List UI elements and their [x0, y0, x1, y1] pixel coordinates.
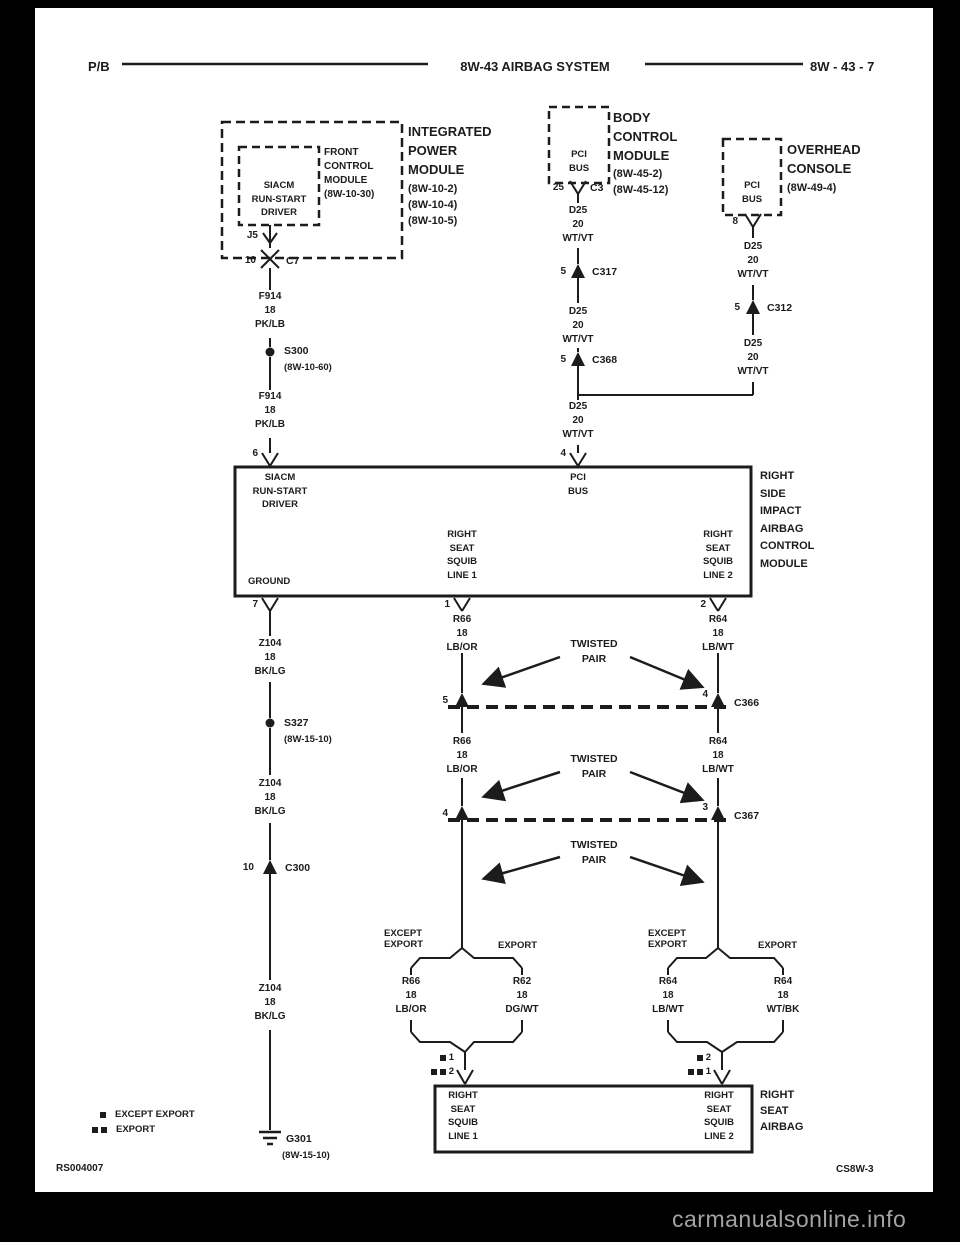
siacm-ground-label: GROUND — [248, 575, 308, 589]
console-bus-label: PCI BUS — [723, 179, 781, 206]
airbag-pin-number: 2 — [449, 1067, 454, 1077]
connector-c312-pin: 5 — [722, 302, 740, 313]
page-code: P/B — [88, 57, 148, 76]
connector-c368-name: C368 — [592, 354, 636, 366]
variant-square-icon — [100, 1112, 106, 1118]
wire-d25-label: D25 20 WT/VT — [723, 240, 783, 282]
siacm-squib1-label: RIGHT SEAT SQUIB LINE 1 — [438, 528, 486, 582]
connector-c7-name: C7 — [286, 255, 326, 267]
variant-square-icon — [440, 1055, 446, 1061]
bcm-refs: (8W-45-2) (8W-45-12) — [613, 166, 723, 198]
wire-r64-label: R64 18 LB/WT — [638, 975, 698, 1017]
twisted-pair-note: TWISTED PAIR — [556, 752, 632, 782]
twisted-pair-note: TWISTED PAIR — [556, 838, 632, 868]
airbag-module-label: RIGHT SEAT AIRBAG — [760, 1087, 840, 1135]
fcm-label: FRONT CONTROL MODULE (8W-10-30) — [324, 146, 400, 202]
connector-c7-pin: 10 — [232, 255, 256, 266]
airbag-pin-squib2-export: 1 — [667, 1067, 711, 1077]
bcm-pin: 25 — [540, 182, 564, 193]
wire-d25-label: D25 20 WT/VT — [548, 400, 608, 442]
siacm-pin-pci: 4 — [548, 448, 566, 459]
siacm-pin-squib1: 1 — [432, 599, 450, 610]
legend-except-export: EXCEPT EXPORT — [100, 1110, 300, 1120]
ground-g301-ref: (8W-15-10) — [282, 1149, 352, 1163]
airbag-pin-number: 1 — [706, 1067, 711, 1077]
airbag-pin-squib1-export: 2 — [410, 1067, 454, 1077]
scanned-manual-page: { "header": {"left": "P/B", "title": "8W… — [0, 0, 960, 1242]
connector-c300-name: C300 — [285, 862, 329, 874]
airbag-pin-squib1-std: 1 — [420, 1053, 454, 1063]
wire-z104-label: Z104 18 BK/LG — [240, 982, 300, 1024]
wire-f914-label: F914 18 PK/LB — [240, 390, 300, 432]
connector-c300-pin: 10 — [230, 862, 254, 873]
airbag-pin-squib2-std: 2 — [677, 1053, 711, 1063]
ipm-title: INTEGRATED POWER MODULE — [408, 122, 528, 179]
airbag-pin-number: 1 — [449, 1053, 454, 1063]
variant-square-icon — [688, 1069, 694, 1075]
ipm-refs: (8W-10-2) (8W-10-4) (8W-10-5) — [408, 181, 518, 229]
page-number: 8W - 43 - 7 — [810, 57, 910, 76]
wire-d25-label: D25 20 WT/VT — [548, 204, 608, 246]
footer-drawing-id: RS004007 — [56, 1162, 146, 1176]
legend-text: EXPORT — [116, 1125, 155, 1135]
overhead-console-refs: (8W-49-4) — [787, 180, 887, 196]
variant-note-except-export: EXCEPT EXPORT — [648, 928, 702, 950]
connector-c367-pin-right: 3 — [690, 802, 708, 813]
twisted-pair-note: TWISTED PAIR — [556, 637, 632, 667]
siacm-pin-ground: 7 — [240, 599, 258, 610]
console-pin: 8 — [718, 216, 738, 227]
siacm-module-label: RIGHT SIDE IMPACT AIRBAG CONTROL MODULE — [760, 468, 870, 573]
wire-r62-label: R62 18 DG/WT — [492, 975, 552, 1017]
wire-r66-label: R66 18 LB/OR — [432, 613, 492, 655]
airbag-pin-number: 2 — [706, 1053, 711, 1063]
variant-note-except-export: EXCEPT EXPORT — [384, 928, 438, 950]
splice-s327-name: S327 — [284, 717, 328, 729]
variant-square-icon — [92, 1127, 98, 1133]
overhead-console-title: OVERHEAD CONSOLE — [787, 140, 897, 178]
connector-c317-pin: 5 — [548, 266, 566, 277]
siacm-run-start-label: SIACM RUN-START DRIVER — [240, 471, 320, 512]
connector-c366-pin-left: 5 — [430, 695, 448, 706]
fcm-pin: J5 — [238, 230, 258, 241]
wire-d25-label: D25 20 WT/VT — [723, 337, 783, 379]
page-title: 8W-43 AIRBAG SYSTEM — [428, 57, 642, 76]
wire-z104-label: Z104 18 BK/LG — [240, 637, 300, 679]
legend-text: EXCEPT EXPORT — [115, 1110, 195, 1120]
wire-r64-label: R64 18 LB/WT — [688, 613, 748, 655]
connector-c368-pin: 5 — [548, 354, 566, 365]
variant-square-icon — [431, 1069, 437, 1075]
connector-arrow-symbols — [263, 264, 760, 874]
bcm-bus-label: PCI BUS — [549, 148, 609, 175]
variant-square-icon — [440, 1069, 446, 1075]
airbag-squib2-label: RIGHT SEAT SQUIB LINE 2 — [696, 1089, 742, 1143]
wire-r64-export-label: R64 18 WT/BK — [753, 975, 813, 1017]
variant-square-icon — [697, 1055, 703, 1061]
bcm-connector-name: C3 — [590, 182, 624, 194]
wire-r64-label: R64 18 LB/WT — [688, 735, 748, 777]
wire-z104-label: Z104 18 BK/LG — [240, 777, 300, 819]
splice-s300-ref: (8W-10-60) — [284, 361, 354, 375]
connector-c367-pin-left: 4 — [430, 808, 448, 819]
bcm-title: BODY CONTROL MODULE — [613, 108, 723, 165]
siacm-pci-label: PCI BUS — [548, 471, 608, 498]
variant-note-export: EXPORT — [758, 940, 808, 951]
variant-note-export: EXPORT — [498, 940, 548, 951]
wire-f914-label: F914 18 PK/LB — [240, 290, 300, 332]
variant-square-icon — [697, 1069, 703, 1075]
siacm-pin-squib2: 2 — [688, 599, 706, 610]
footer-sheet-id: CS8W-3 — [836, 1163, 916, 1177]
variant-square-icon — [101, 1127, 107, 1133]
siacm-pin-run-start: 6 — [240, 448, 258, 459]
wire-r66-label: R66 18 LB/OR — [381, 975, 441, 1017]
connector-c367-name: C367 — [734, 810, 778, 822]
watermark-text: carmanualsonline.info — [672, 1206, 906, 1233]
connector-c366-pin-right: 4 — [690, 689, 708, 700]
legend-export: EXPORT — [92, 1125, 292, 1135]
airbag-squib1-label: RIGHT SEAT SQUIB LINE 1 — [440, 1089, 486, 1143]
siacm-squib2-label: RIGHT SEAT SQUIB LINE 2 — [694, 528, 742, 582]
connector-c312-name: C312 — [767, 302, 811, 314]
splice-s327-ref: (8W-15-10) — [284, 733, 354, 747]
connector-c317-name: C317 — [592, 266, 636, 278]
connector-c366-name: C366 — [734, 697, 778, 709]
splice-s300-name: S300 — [284, 345, 328, 357]
wire-r66-label: R66 18 LB/OR — [432, 735, 492, 777]
wire-d25-label: D25 20 WT/VT — [548, 305, 608, 347]
ground-g301-name: G301 — [286, 1133, 330, 1145]
fcm-function-label: SIACM RUN-START DRIVER — [240, 179, 318, 220]
